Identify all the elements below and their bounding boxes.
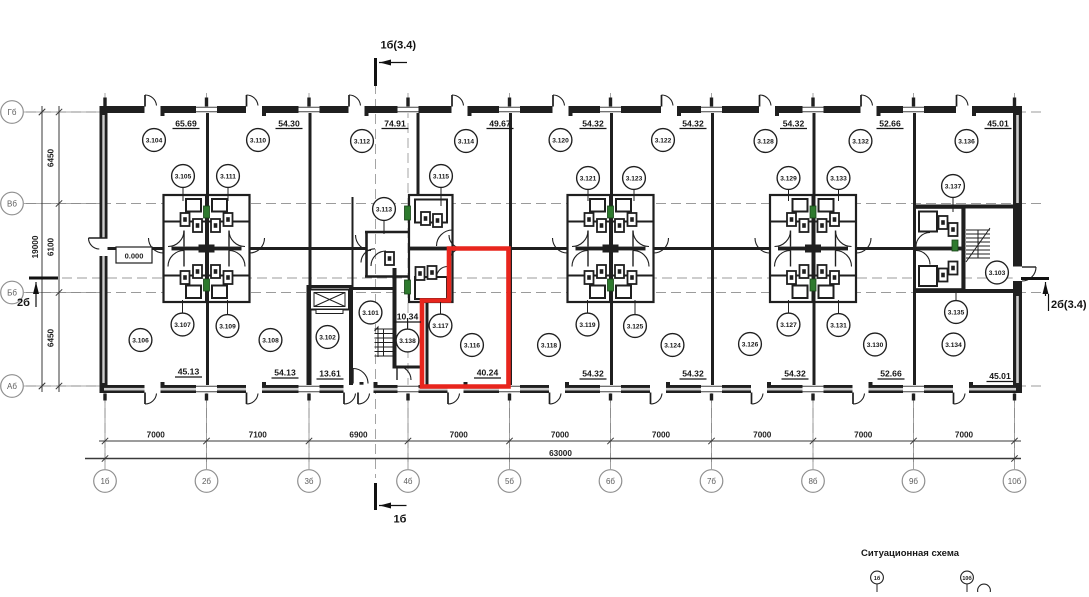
svg-text:7000: 7000 [753, 431, 772, 440]
svg-text:54.32: 54.32 [582, 119, 604, 129]
svg-text:74.91: 74.91 [384, 119, 406, 129]
svg-text:1б: 1б [394, 514, 407, 526]
svg-text:7000: 7000 [652, 431, 671, 440]
svg-text:3.107: 3.107 [174, 322, 191, 329]
svg-text:45.13: 45.13 [178, 367, 200, 377]
svg-text:49.67: 49.67 [489, 119, 511, 129]
svg-text:Бб: Бб [7, 289, 17, 298]
svg-text:Аб: Аб [7, 382, 17, 391]
svg-text:13.61: 13.61 [319, 369, 341, 379]
svg-text:3.101: 3.101 [362, 310, 379, 317]
svg-text:54.32: 54.32 [682, 369, 704, 379]
svg-text:3.112: 3.112 [354, 138, 370, 145]
svg-text:2б: 2б [17, 297, 30, 309]
svg-text:3.135: 3.135 [948, 309, 965, 316]
svg-text:3.123: 3.123 [626, 175, 643, 182]
svg-text:3.127: 3.127 [780, 322, 797, 329]
svg-text:3.129: 3.129 [780, 175, 797, 182]
svg-text:54.30: 54.30 [278, 119, 300, 129]
svg-text:1б: 1б [874, 575, 881, 582]
svg-text:54.32: 54.32 [682, 119, 704, 129]
svg-text:3.109: 3.109 [219, 323, 236, 330]
svg-text:3.136: 3.136 [958, 138, 975, 145]
svg-text:3.106: 3.106 [132, 337, 149, 344]
svg-text:4б: 4б [403, 477, 412, 486]
svg-text:45.01: 45.01 [987, 119, 1009, 129]
svg-text:3б: 3б [304, 477, 313, 486]
svg-text:52.66: 52.66 [879, 119, 901, 129]
svg-text:7000: 7000 [147, 431, 166, 440]
svg-text:63000: 63000 [549, 449, 572, 458]
svg-text:3.133: 3.133 [830, 175, 847, 182]
svg-text:7000: 7000 [854, 431, 873, 440]
svg-text:3.132: 3.132 [852, 138, 869, 145]
svg-text:3.119: 3.119 [579, 322, 595, 329]
svg-text:3.122: 3.122 [655, 137, 672, 144]
svg-text:3.110: 3.110 [250, 137, 266, 144]
svg-text:54.32: 54.32 [582, 369, 604, 379]
svg-text:3.138: 3.138 [399, 338, 416, 345]
svg-text:3.117: 3.117 [432, 323, 448, 330]
svg-text:2б(3.4): 2б(3.4) [1051, 299, 1087, 311]
svg-text:5б: 5б [505, 477, 514, 486]
svg-text:Вб: Вб [7, 200, 17, 209]
svg-text:Ситуационная схема: Ситуационная схема [861, 548, 960, 559]
svg-text:3.108: 3.108 [262, 337, 279, 344]
svg-text:7000: 7000 [450, 431, 469, 440]
svg-text:7б: 7б [707, 477, 716, 486]
svg-text:3.126: 3.126 [742, 341, 759, 348]
svg-text:1б(3.4): 1б(3.4) [381, 40, 417, 52]
svg-text:7000: 7000 [551, 431, 570, 440]
svg-text:8б: 8б [808, 477, 817, 486]
svg-text:7000: 7000 [955, 431, 974, 440]
svg-text:65.69: 65.69 [175, 119, 197, 129]
svg-text:3.105: 3.105 [175, 173, 192, 180]
svg-text:45.01: 45.01 [989, 371, 1011, 381]
svg-text:52.66: 52.66 [880, 369, 902, 379]
svg-text:3.137: 3.137 [945, 183, 962, 190]
svg-text:3.102: 3.102 [319, 334, 336, 341]
svg-text:19000: 19000 [31, 235, 40, 258]
svg-text:40.24: 40.24 [477, 368, 499, 378]
svg-text:3.116: 3.116 [464, 342, 480, 349]
svg-text:54.32: 54.32 [784, 369, 806, 379]
svg-text:3.124: 3.124 [664, 342, 681, 349]
svg-text:10б: 10б [1008, 477, 1022, 486]
svg-text:2б: 2б [202, 477, 211, 486]
svg-text:10б: 10б [962, 575, 972, 582]
svg-text:1б: 1б [100, 477, 109, 486]
svg-text:6900: 6900 [349, 431, 368, 440]
svg-text:3.114: 3.114 [458, 138, 474, 145]
svg-text:0.000: 0.000 [125, 252, 144, 261]
svg-text:54.13: 54.13 [274, 368, 296, 378]
svg-text:54.32: 54.32 [783, 119, 805, 129]
svg-text:3.131: 3.131 [830, 322, 847, 329]
svg-text:7100: 7100 [249, 431, 268, 440]
svg-text:3.103: 3.103 [989, 270, 1006, 277]
svg-text:Гб: Гб [8, 108, 17, 117]
svg-text:3.128: 3.128 [757, 138, 774, 145]
svg-text:3.125: 3.125 [627, 323, 644, 330]
svg-text:3.115: 3.115 [433, 173, 449, 180]
svg-text:3.130: 3.130 [867, 342, 884, 349]
svg-text:6450: 6450 [47, 148, 56, 167]
svg-text:3.111: 3.111 [220, 173, 236, 180]
svg-text:3.113: 3.113 [376, 206, 392, 213]
svg-text:3.104: 3.104 [146, 137, 163, 144]
svg-text:6б: 6б [606, 477, 615, 486]
svg-text:6100: 6100 [47, 237, 56, 256]
svg-text:10.34: 10.34 [397, 312, 419, 322]
svg-text:3.121: 3.121 [580, 175, 597, 182]
svg-text:3.118: 3.118 [541, 342, 557, 349]
svg-text:3.120: 3.120 [552, 137, 569, 144]
svg-text:9б: 9б [909, 477, 918, 486]
svg-text:3.134: 3.134 [945, 342, 962, 349]
svg-text:6450: 6450 [47, 328, 56, 347]
